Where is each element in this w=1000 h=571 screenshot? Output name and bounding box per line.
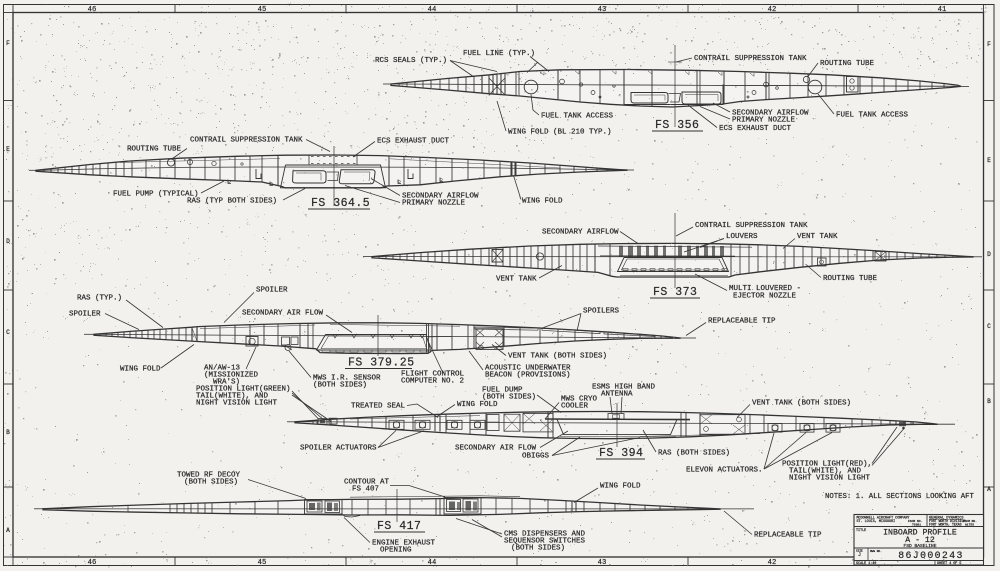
svg-text:FSD BASELINE: FSD BASELINE	[903, 543, 936, 549]
svg-text:EJECTOR NOZZLE: EJECTOR NOZZLE	[733, 293, 797, 301]
svg-text:NIGHT VISION LIGHT: NIGHT VISION LIGHT	[196, 400, 278, 408]
svg-text:VENT TANK: VENT TANK	[797, 233, 838, 241]
svg-text:WING FOLD: WING FOLD	[600, 483, 641, 491]
svg-text:SHEET 4 OF 5: SHEET 4 OF 5	[937, 562, 961, 566]
svg-text:REPLACEABLE TIP: REPLACEABLE TIP	[754, 532, 822, 540]
svg-text:CONTRAIL SUPPRESSION TANK: CONTRAIL SUPPRESSION TANK	[695, 222, 808, 230]
svg-text:SECONDARY AIR FLOW: SECONDARY AIR FLOW	[242, 310, 324, 318]
svg-text:SCALE 1:40: SCALE 1:40	[856, 562, 876, 566]
svg-text:WING FOLD: WING FOLD	[120, 366, 161, 374]
svg-text:J: J	[858, 552, 861, 558]
svg-text:SPOILER: SPOILER	[256, 287, 288, 295]
svg-text:(BOTH SIDES): (BOTH SIDES)	[482, 394, 536, 402]
svg-text:VENT TANK (BOTH SIDES): VENT TANK (BOTH SIDES)	[508, 353, 607, 361]
svg-text:A: A	[987, 486, 991, 493]
svg-text:CONTRAIL SUPPRESSION TANK: CONTRAIL SUPPRESSION TANK	[190, 137, 303, 145]
svg-text:ECS EXHAUST DUCT: ECS EXHAUST DUCT	[377, 138, 450, 146]
svg-text:FS 356: FS 356	[655, 119, 699, 132]
svg-text:REPLACEABLE TIP: REPLACEABLE TIP	[708, 318, 776, 326]
svg-text:SECONDARY AIRFLOW: SECONDARY AIRFLOW	[542, 229, 619, 237]
svg-text:41: 41	[938, 6, 947, 14]
svg-text:COMPUTER NO. 2: COMPUTER NO. 2	[401, 378, 464, 386]
svg-text:F: F	[6, 40, 10, 47]
svg-text:FUEL TANK ACCESS: FUEL TANK ACCESS	[836, 112, 909, 120]
svg-text:E: E	[987, 157, 991, 164]
svg-text:43: 43	[598, 559, 607, 567]
svg-text:LOUVERS: LOUVERS	[726, 233, 758, 241]
svg-text:(BOTH SIDES): (BOTH SIDES)	[184, 479, 238, 487]
svg-text:BEACON (PROVISIONS): BEACON (PROVISIONS)	[485, 372, 571, 380]
svg-text:F: F	[987, 41, 991, 48]
svg-text:E: E	[6, 146, 10, 153]
svg-text:ST. LOUIS, MISSOURI: ST. LOUIS, MISSOURI	[857, 520, 896, 524]
svg-text:WING FOLD (BL 210 TYP.): WING FOLD (BL 210 TYP.)	[508, 129, 612, 137]
svg-text:42: 42	[768, 6, 777, 14]
svg-text:SPOILER: SPOILER	[69, 311, 101, 319]
svg-text:(BOTH SIDES): (BOTH SIDES)	[313, 382, 367, 390]
svg-text:RAS (TYP BOTH SIDES): RAS (TYP BOTH SIDES)	[187, 198, 277, 206]
svg-text:FS 379.25: FS 379.25	[348, 357, 415, 370]
svg-text:C: C	[987, 323, 991, 330]
svg-text:VENT TANK (BOTH SIDES): VENT TANK (BOTH SIDES)	[752, 400, 851, 408]
svg-text:D: D	[987, 251, 991, 258]
svg-text:RAS (TYP.): RAS (TYP.)	[77, 295, 122, 303]
svg-text:B: B	[987, 398, 991, 405]
svg-text:WING FOLD: WING FOLD	[522, 198, 563, 206]
svg-text:86J000243: 86J000243	[898, 550, 964, 561]
svg-text:SPOILERS: SPOILERS	[583, 308, 620, 316]
svg-text:PRIMARY NOZZLE: PRIMARY NOZZLE	[402, 200, 466, 208]
svg-text:FS 407: FS 407	[352, 486, 379, 494]
svg-text:VENT TANK: VENT TANK	[496, 276, 537, 284]
svg-text:FUEL LINE (TYP.): FUEL LINE (TYP.)	[463, 50, 535, 58]
svg-text:SPOILER ACTUATORS: SPOILER ACTUATORS	[300, 445, 377, 453]
svg-text:ECS EXHAUST DUCT: ECS EXHAUST DUCT	[719, 125, 792, 133]
svg-text:ANTENNA: ANTENNA	[601, 391, 633, 399]
svg-text:FS 417: FS 417	[377, 520, 421, 533]
svg-text:SECONDARY AIR FLOW: SECONDARY AIR FLOW	[455, 445, 537, 453]
svg-text:CONTRAIL SUPPRESSION TANK: CONTRAIL SUPPRESSION TANK	[694, 55, 807, 63]
svg-text:DWG NO.: DWG NO.	[870, 550, 882, 553]
svg-text:C: C	[6, 329, 10, 336]
svg-text:81755: 81755	[965, 524, 974, 527]
svg-text:COOLER: COOLER	[561, 403, 589, 411]
svg-text:FUEL TANK ACCESS: FUEL TANK ACCESS	[541, 113, 614, 121]
svg-text:42: 42	[768, 559, 777, 567]
svg-text:NOTES: 1. ALL SECTIONS LOOKING: NOTES: 1. ALL SECTIONS LOOKING AFT	[825, 493, 975, 501]
svg-text:B: B	[6, 429, 10, 436]
svg-text:45: 45	[258, 559, 267, 567]
svg-text:FS 373: FS 373	[653, 286, 697, 299]
svg-text:TITLE: TITLE	[856, 529, 866, 533]
svg-text:FS 394: FS 394	[599, 447, 643, 460]
svg-text:46: 46	[88, 559, 97, 567]
svg-text:RAS (BOTH SIDES): RAS (BOTH SIDES)	[658, 450, 730, 458]
svg-text:WING FOLD: WING FOLD	[457, 401, 498, 409]
svg-text:OPENING: OPENING	[380, 547, 412, 555]
svg-text:FUEL PUMP (TYPICAL): FUEL PUMP (TYPICAL)	[113, 191, 199, 199]
svg-text:ROUTING TUBE: ROUTING TUBE	[127, 146, 182, 154]
svg-text:OBIGGS: OBIGGS	[522, 453, 550, 461]
svg-text:76301: 76301	[912, 524, 921, 527]
svg-text:A: A	[6, 527, 10, 534]
svg-text:TREATED SEAL: TREATED SEAL	[351, 403, 406, 411]
svg-text:FS 364.5: FS 364.5	[311, 197, 370, 210]
svg-text:ROUTING TUBE: ROUTING TUBE	[820, 60, 875, 68]
svg-text:RCS SEALS (TYP.): RCS SEALS (TYP.)	[375, 57, 447, 65]
svg-text:PRIMARY NOZZLE: PRIMARY NOZZLE	[732, 117, 796, 125]
svg-text:ELEVON ACTUATORS.: ELEVON ACTUATORS.	[686, 467, 763, 475]
svg-text:NIGHT VISION LIGHT: NIGHT VISION LIGHT	[789, 475, 871, 483]
svg-text:ROUTING TUBE: ROUTING TUBE	[823, 275, 878, 283]
svg-text:44: 44	[428, 559, 437, 567]
